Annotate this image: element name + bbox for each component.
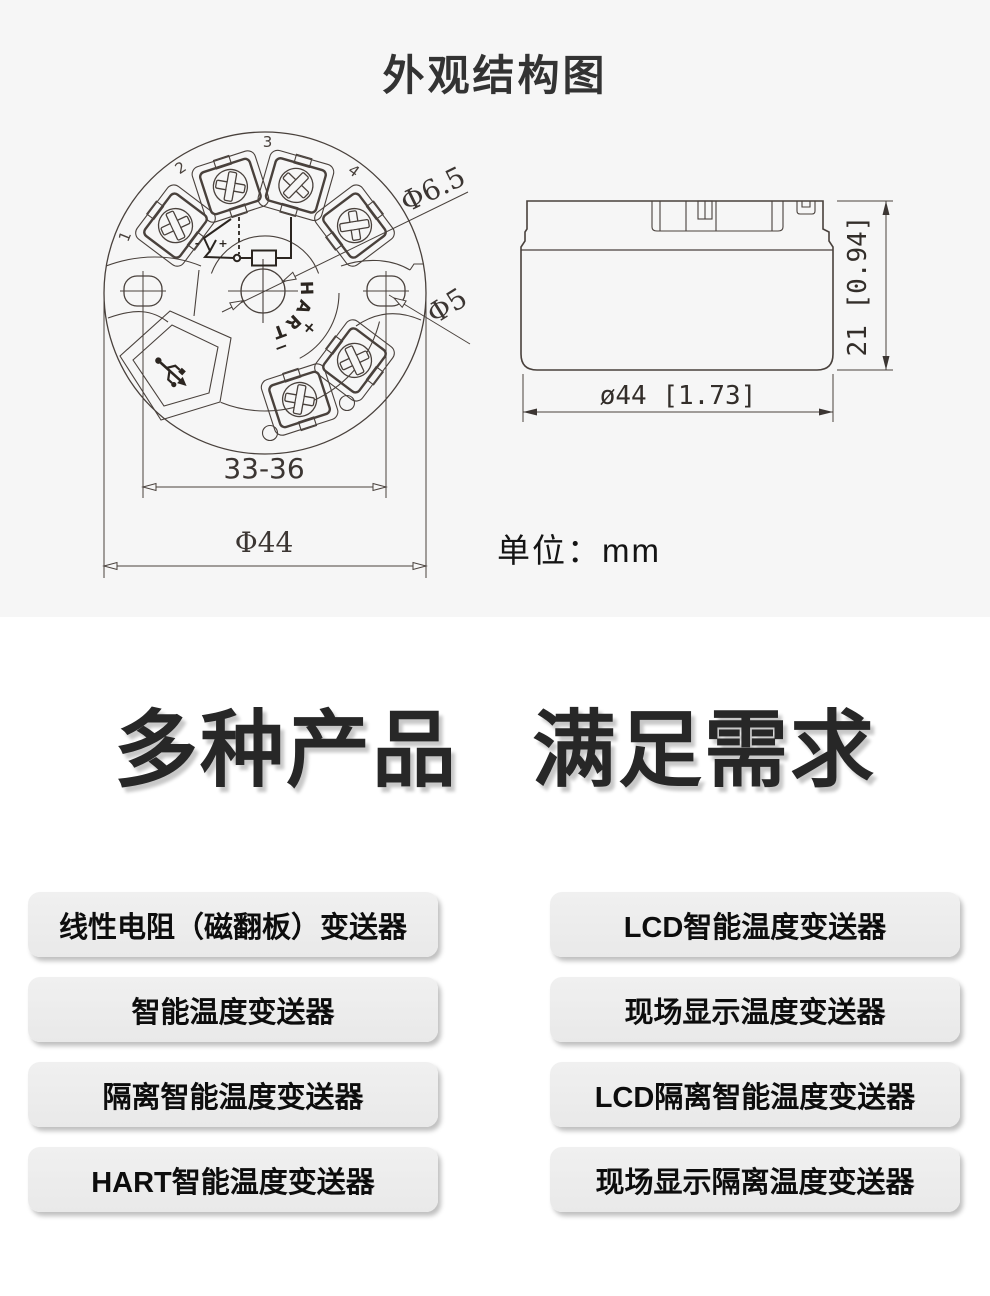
product-chip-field-display-isolated[interactable]: 现场显示隔离温度变送器: [550, 1147, 960, 1212]
dim-center-hole-label: Φ6.5: [395, 160, 470, 219]
product-chip-smart[interactable]: 智能温度变送器: [28, 977, 438, 1042]
pilot-hole: [263, 426, 278, 441]
dim-side-height: 21 [0.94]: [837, 201, 893, 370]
product-detail-image: 1 2 3 4: [0, 0, 990, 1296]
sensor-wiring-schematic: - +: [195, 217, 291, 266]
dim-side-height-label: 21 [0.94]: [843, 216, 873, 357]
pilot-hole: [340, 396, 355, 411]
dim-side-width-label: ø44 [1.73]: [600, 381, 757, 411]
promo-heading-right: 满足需求: [532, 683, 876, 804]
dim-mount-span: 33-36: [143, 452, 386, 491]
usb-icon: [149, 351, 193, 394]
product-chip-lcd-smart[interactable]: LCD智能温度变送器: [550, 892, 960, 957]
promo-heading-left: 多种产品: [114, 683, 458, 804]
unit-label: 单位：mm: [497, 524, 661, 572]
product-chip-hart-smart[interactable]: HART智能温度变送器: [28, 1147, 438, 1212]
dim-outer-diameter-label: Φ44: [235, 526, 294, 559]
product-buttons-grid: 线性电阻（磁翻板）变送器 LCD智能温度变送器 智能温度变送器 现场显示温度变送…: [28, 892, 960, 1212]
product-chip-isolated-smart[interactable]: 隔离智能温度变送器: [28, 1062, 438, 1127]
sensor-minus-label: -: [195, 237, 200, 250]
product-chip-linear-resistance[interactable]: 线性电阻（磁翻板）变送器: [28, 892, 438, 957]
dim-mount-span-label: 33-36: [223, 452, 304, 485]
terminal-number-4: 4: [345, 161, 363, 181]
terminal-number-1: 1: [115, 229, 135, 245]
technical-drawing: 1 2 3 4: [0, 0, 990, 617]
dim-side-hole-label: Φ5: [421, 281, 473, 331]
sensor-plus-label: +: [218, 237, 227, 250]
terminal-number-2: 2: [172, 158, 190, 178]
terminal-3: [256, 147, 336, 223]
terminal-4: [311, 181, 399, 270]
side-view: ø44 [1.73] 21 [0.94]: [521, 201, 893, 422]
mount-hole-left: [120, 271, 166, 498]
terminal-number-3: 3: [263, 133, 273, 151]
product-chip-field-display[interactable]: 现场显示温度变送器: [550, 977, 960, 1042]
dim-side-width: ø44 [1.73]: [523, 374, 833, 422]
structure-diagram-section: 1 2 3 4: [0, 0, 990, 617]
hart-plus-label: +: [297, 316, 320, 338]
products-section: 多种产品 满足需求 线性电阻（磁翻板）变送器 LCD智能温度变送器 智能温度变送…: [0, 617, 990, 1296]
dim-outer-diameter: Φ44: [104, 293, 426, 578]
promo-heading: 多种产品 满足需求: [0, 617, 990, 804]
hart-minus-label: −: [272, 336, 291, 358]
product-chip-lcd-isolated-smart[interactable]: LCD隔离智能温度变送器: [550, 1062, 960, 1127]
top-view: 1 2 3 4: [104, 132, 473, 578]
